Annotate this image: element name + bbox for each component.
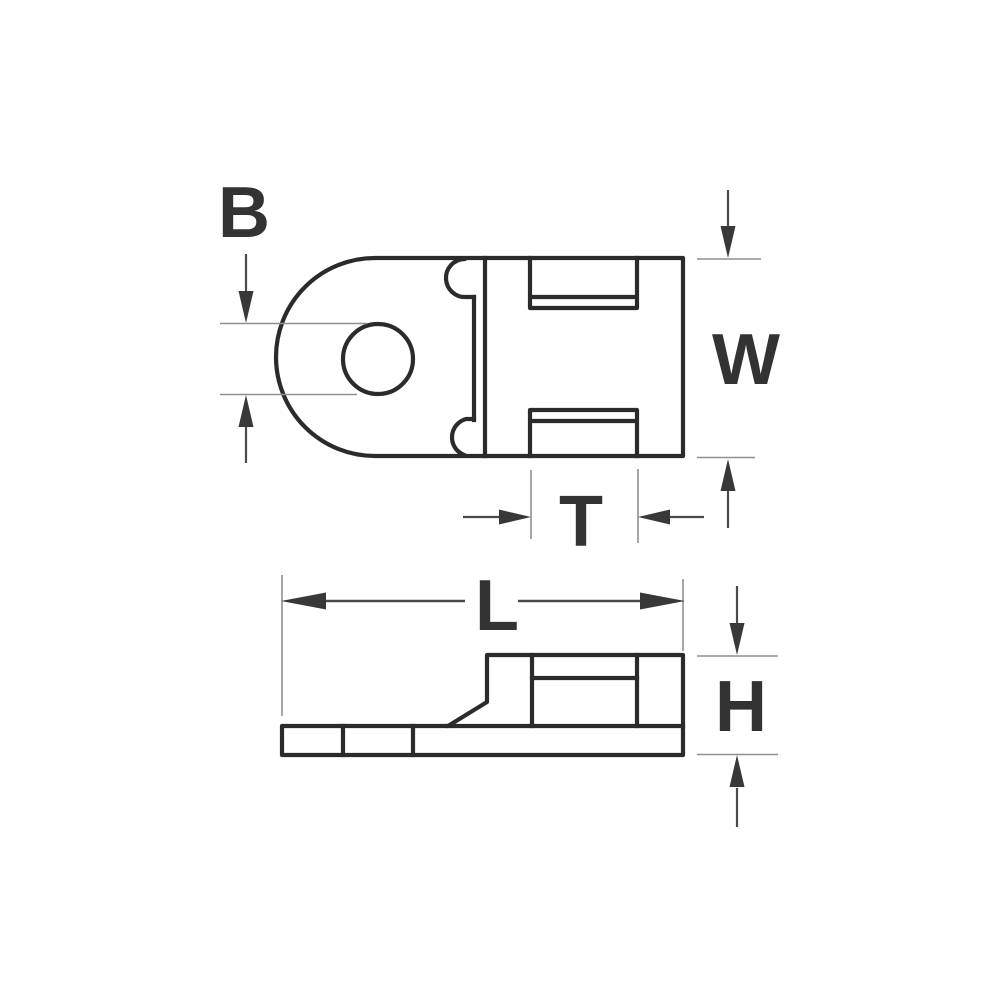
- dim-label-w: W: [712, 320, 780, 400]
- dimension-body-width: W: [697, 190, 780, 528]
- mount-body-outline: [276, 258, 683, 456]
- dim-l-arrowhead-left: [281, 593, 326, 610]
- dim-t-arrowhead-left: [499, 510, 531, 525]
- dim-label-l: L: [475, 566, 519, 646]
- dim-h-arrowhead-top: [730, 623, 745, 655]
- strap-guide-bottom: [452, 419, 474, 455]
- top-view: [276, 258, 683, 456]
- strap-slot-top: [530, 258, 637, 308]
- dim-w-arrowhead-bottom: [721, 459, 736, 491]
- dim-label-h: H: [715, 667, 767, 747]
- dim-h-arrowhead-bottom: [730, 755, 745, 787]
- dimension-slot-width: T: [463, 469, 704, 562]
- dim-l-arrowhead-right: [640, 593, 685, 610]
- dim-b-arrowhead-top: [239, 291, 254, 323]
- strap-guide-top: [446, 259, 474, 297]
- dim-t-arrowhead-right: [638, 510, 670, 525]
- dimension-hole-diameter: B: [218, 173, 367, 463]
- side-view: [282, 655, 683, 755]
- base-segment-lines: [343, 726, 413, 755]
- saddle-slot-walls: [532, 655, 637, 726]
- dim-label-b: B: [218, 173, 270, 253]
- diagram-canvas: B W T L: [0, 0, 1000, 1000]
- strap-slot-bottom: [530, 410, 637, 456]
- dimension-overall-height: H: [697, 586, 778, 827]
- mounting-hole: [343, 324, 413, 394]
- dim-label-t: T: [559, 482, 603, 562]
- dimension-overall-length: L: [281, 566, 685, 716]
- dim-b-arrowhead-bottom: [239, 395, 254, 427]
- dim-w-arrowhead-top: [721, 226, 736, 258]
- technical-drawing: B W T L: [0, 0, 1000, 1000]
